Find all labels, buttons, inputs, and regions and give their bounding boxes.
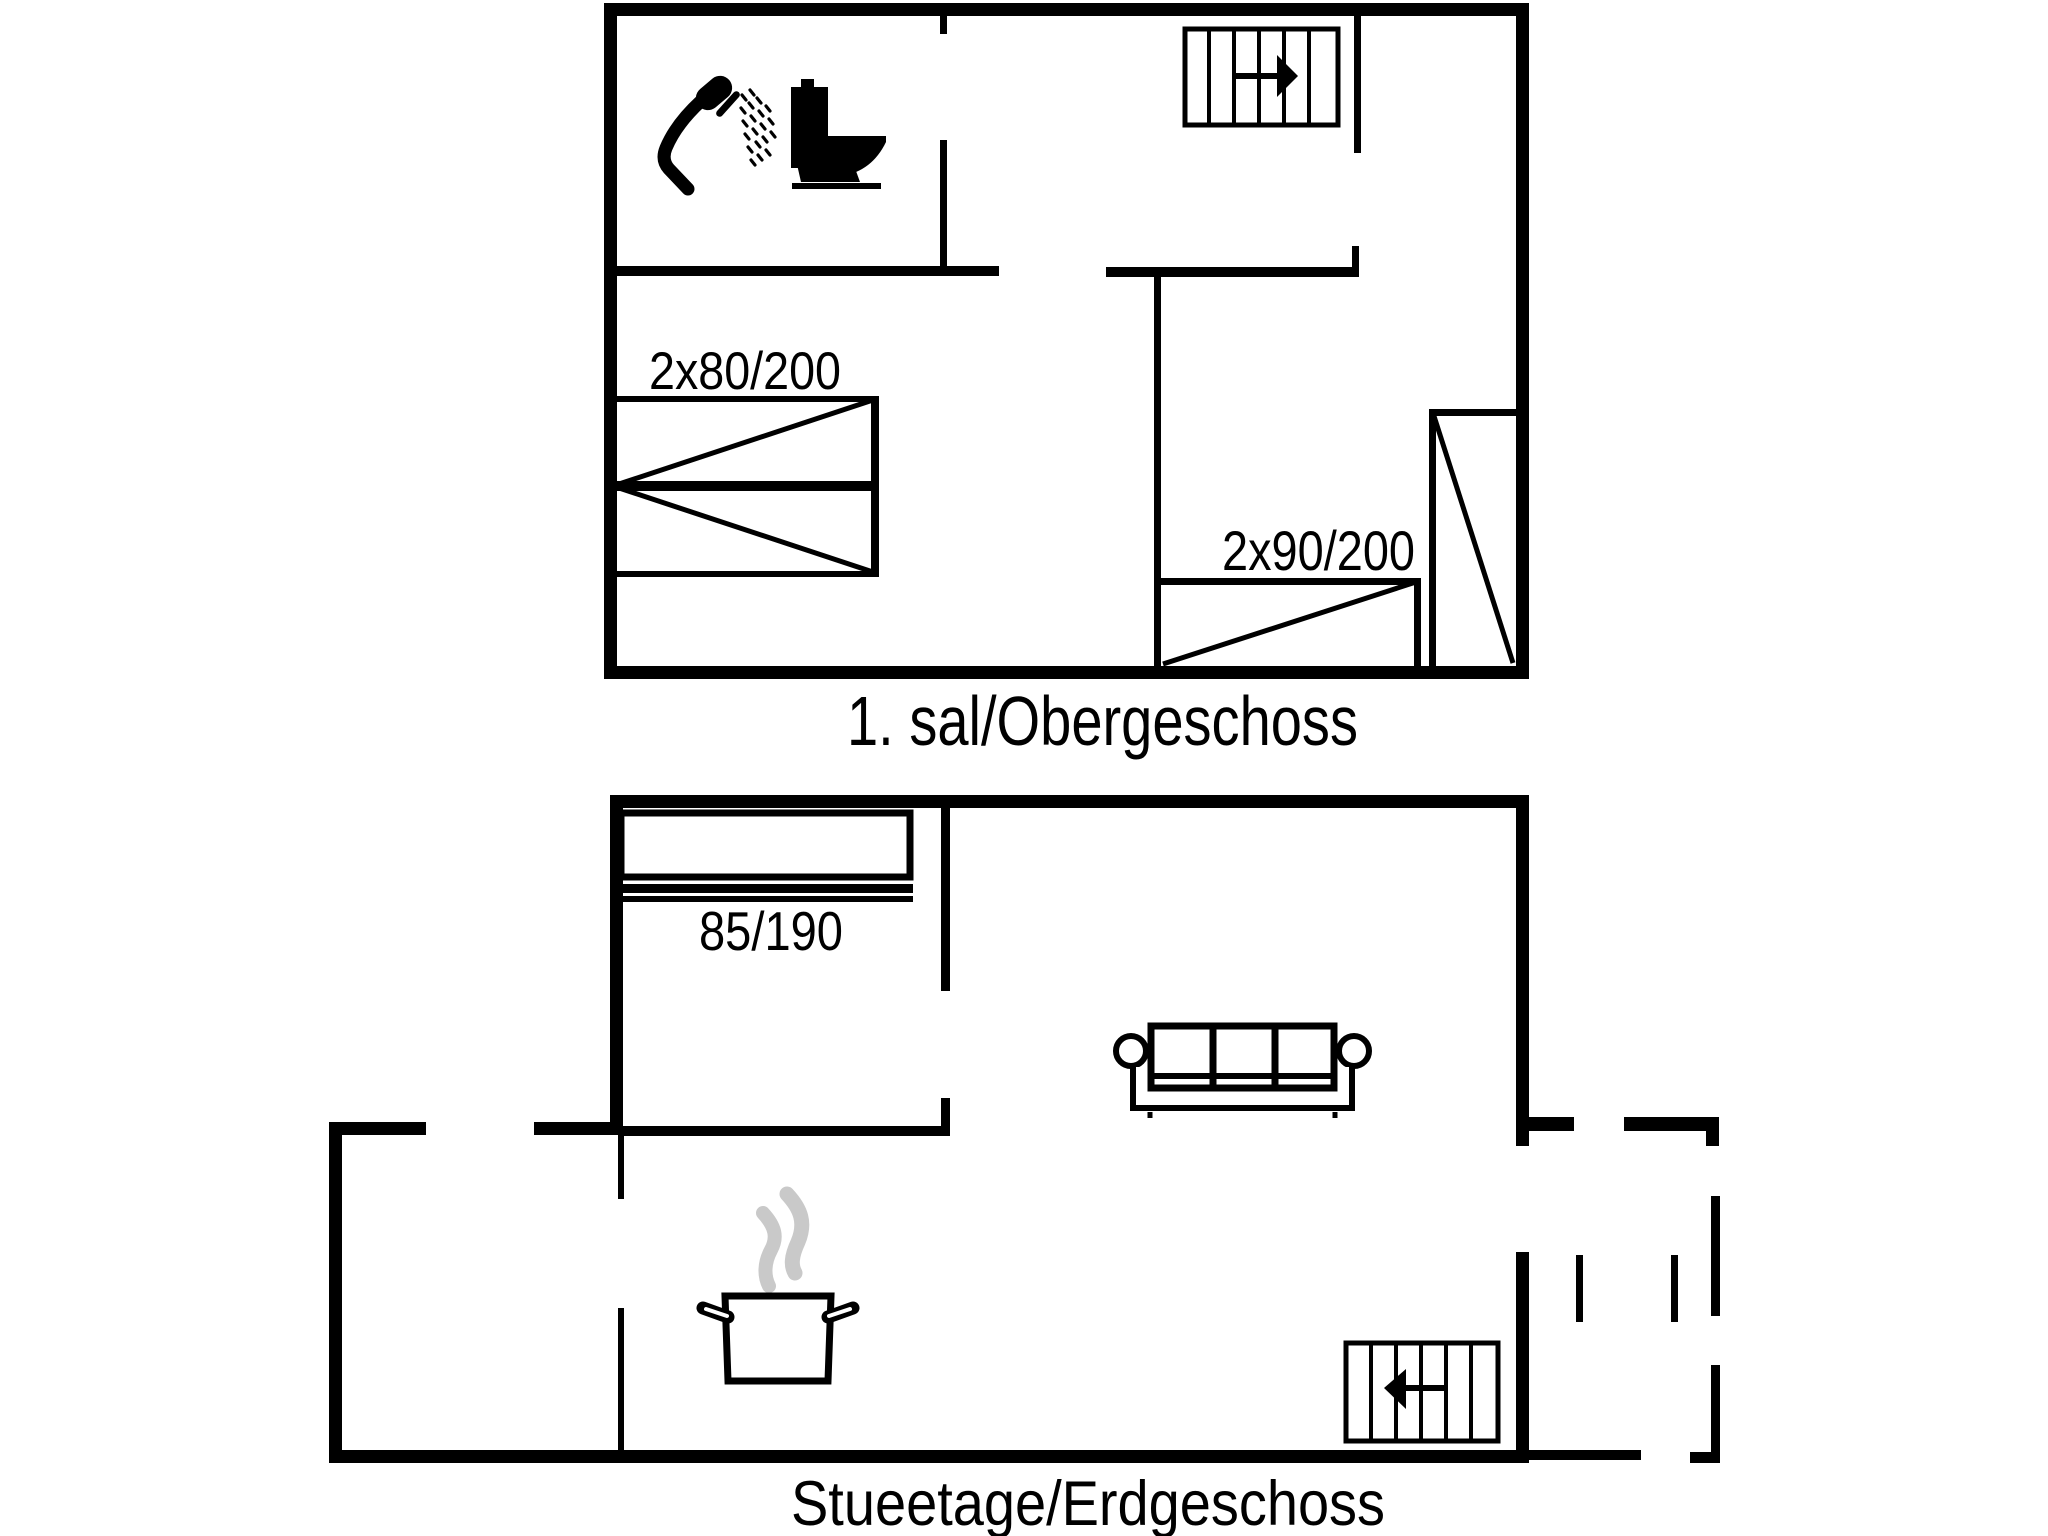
svg-text:1. sal/Obergeschoss: 1. sal/Obergeschoss: [847, 682, 1358, 760]
svg-text:2x90/200: 2x90/200: [1222, 519, 1415, 582]
svg-text:Stueetage/Erdgeschoss: Stueetage/Erdgeschoss: [791, 1469, 1385, 1536]
svg-text:85/190: 85/190: [699, 900, 843, 962]
svg-text:2x80/200: 2x80/200: [649, 342, 841, 401]
